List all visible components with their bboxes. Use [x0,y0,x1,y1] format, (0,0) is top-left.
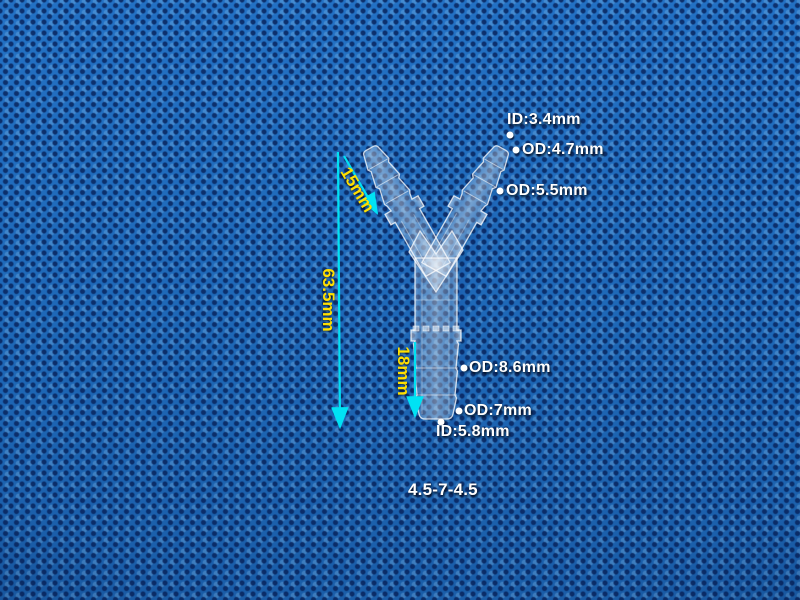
marker-dot-od-5-5 [497,188,504,195]
label-od-top-mid: OD:4.7mm [522,141,604,159]
label-od-top-low: OD:5.5mm [506,182,588,200]
marker-dot-od-4-7 [513,147,520,154]
label-od-stem-lower: OD:7mm [464,402,532,420]
label-stem-length: 18mm [393,346,413,395]
overall-height-arrow [338,152,340,427]
label-overall-height: 63.5mm [318,268,338,331]
connector-stem [411,258,461,419]
marker-dot-od-7 [456,408,463,415]
marker-dot-id-3-4 [507,132,514,139]
size-code: 4.5-7-4.5 [408,480,478,500]
y-connector-graphic [0,0,800,600]
product-photo: ID:3.4mm OD:4.7mm OD:5.5mm OD:8.6mm OD:7… [0,0,800,600]
label-id-bottom: ID:5.8mm [436,423,510,441]
y-connector [353,139,519,419]
label-id-top: ID:3.4mm [507,111,581,129]
marker-dot-od-8-6 [461,365,468,372]
label-od-stem-upper: OD:8.6mm [469,359,551,377]
